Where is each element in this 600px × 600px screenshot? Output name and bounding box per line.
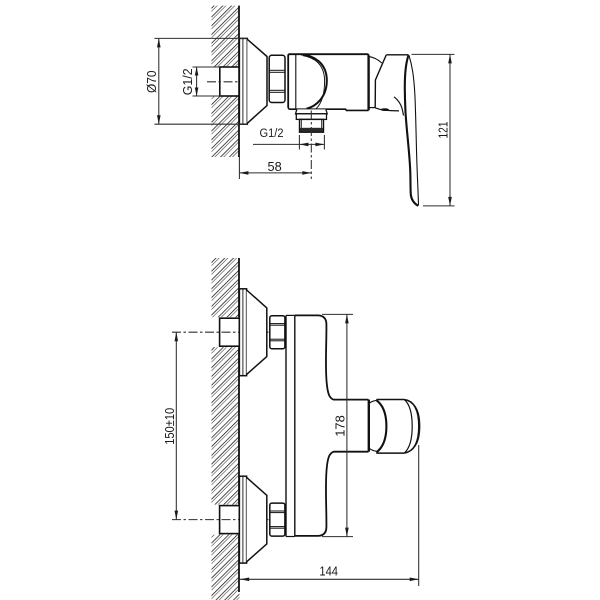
svg-text:G1/2: G1/2 bbox=[180, 68, 195, 95]
svg-text:178: 178 bbox=[333, 415, 348, 437]
svg-text:121: 121 bbox=[435, 122, 450, 139]
svg-text:144: 144 bbox=[319, 564, 338, 579]
svg-text:Ø70: Ø70 bbox=[144, 71, 159, 94]
svg-text:G1/2: G1/2 bbox=[260, 128, 284, 140]
svg-text:150±10: 150±10 bbox=[162, 408, 177, 445]
svg-text:58: 58 bbox=[268, 159, 282, 174]
